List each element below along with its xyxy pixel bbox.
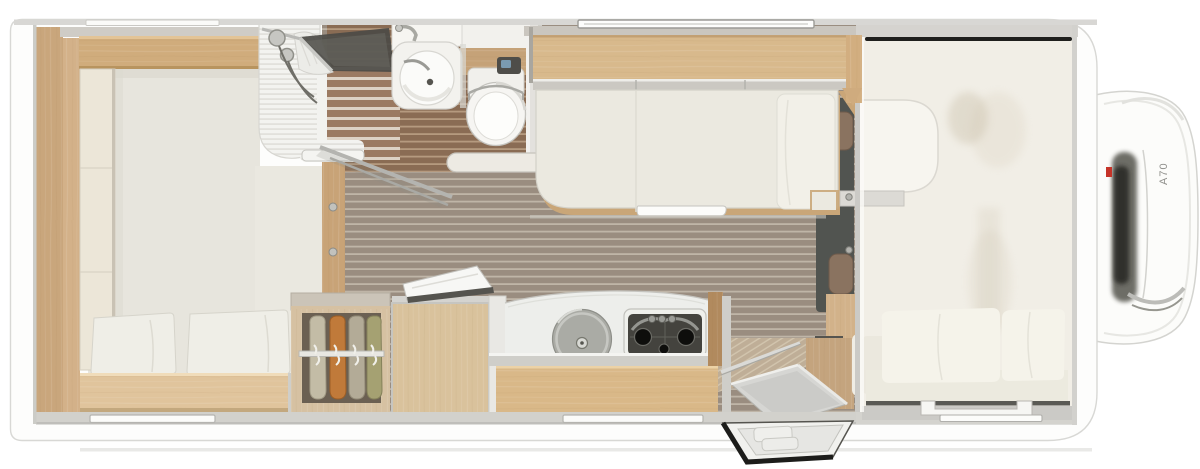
svg-text:A70: A70 (1158, 162, 1170, 185)
